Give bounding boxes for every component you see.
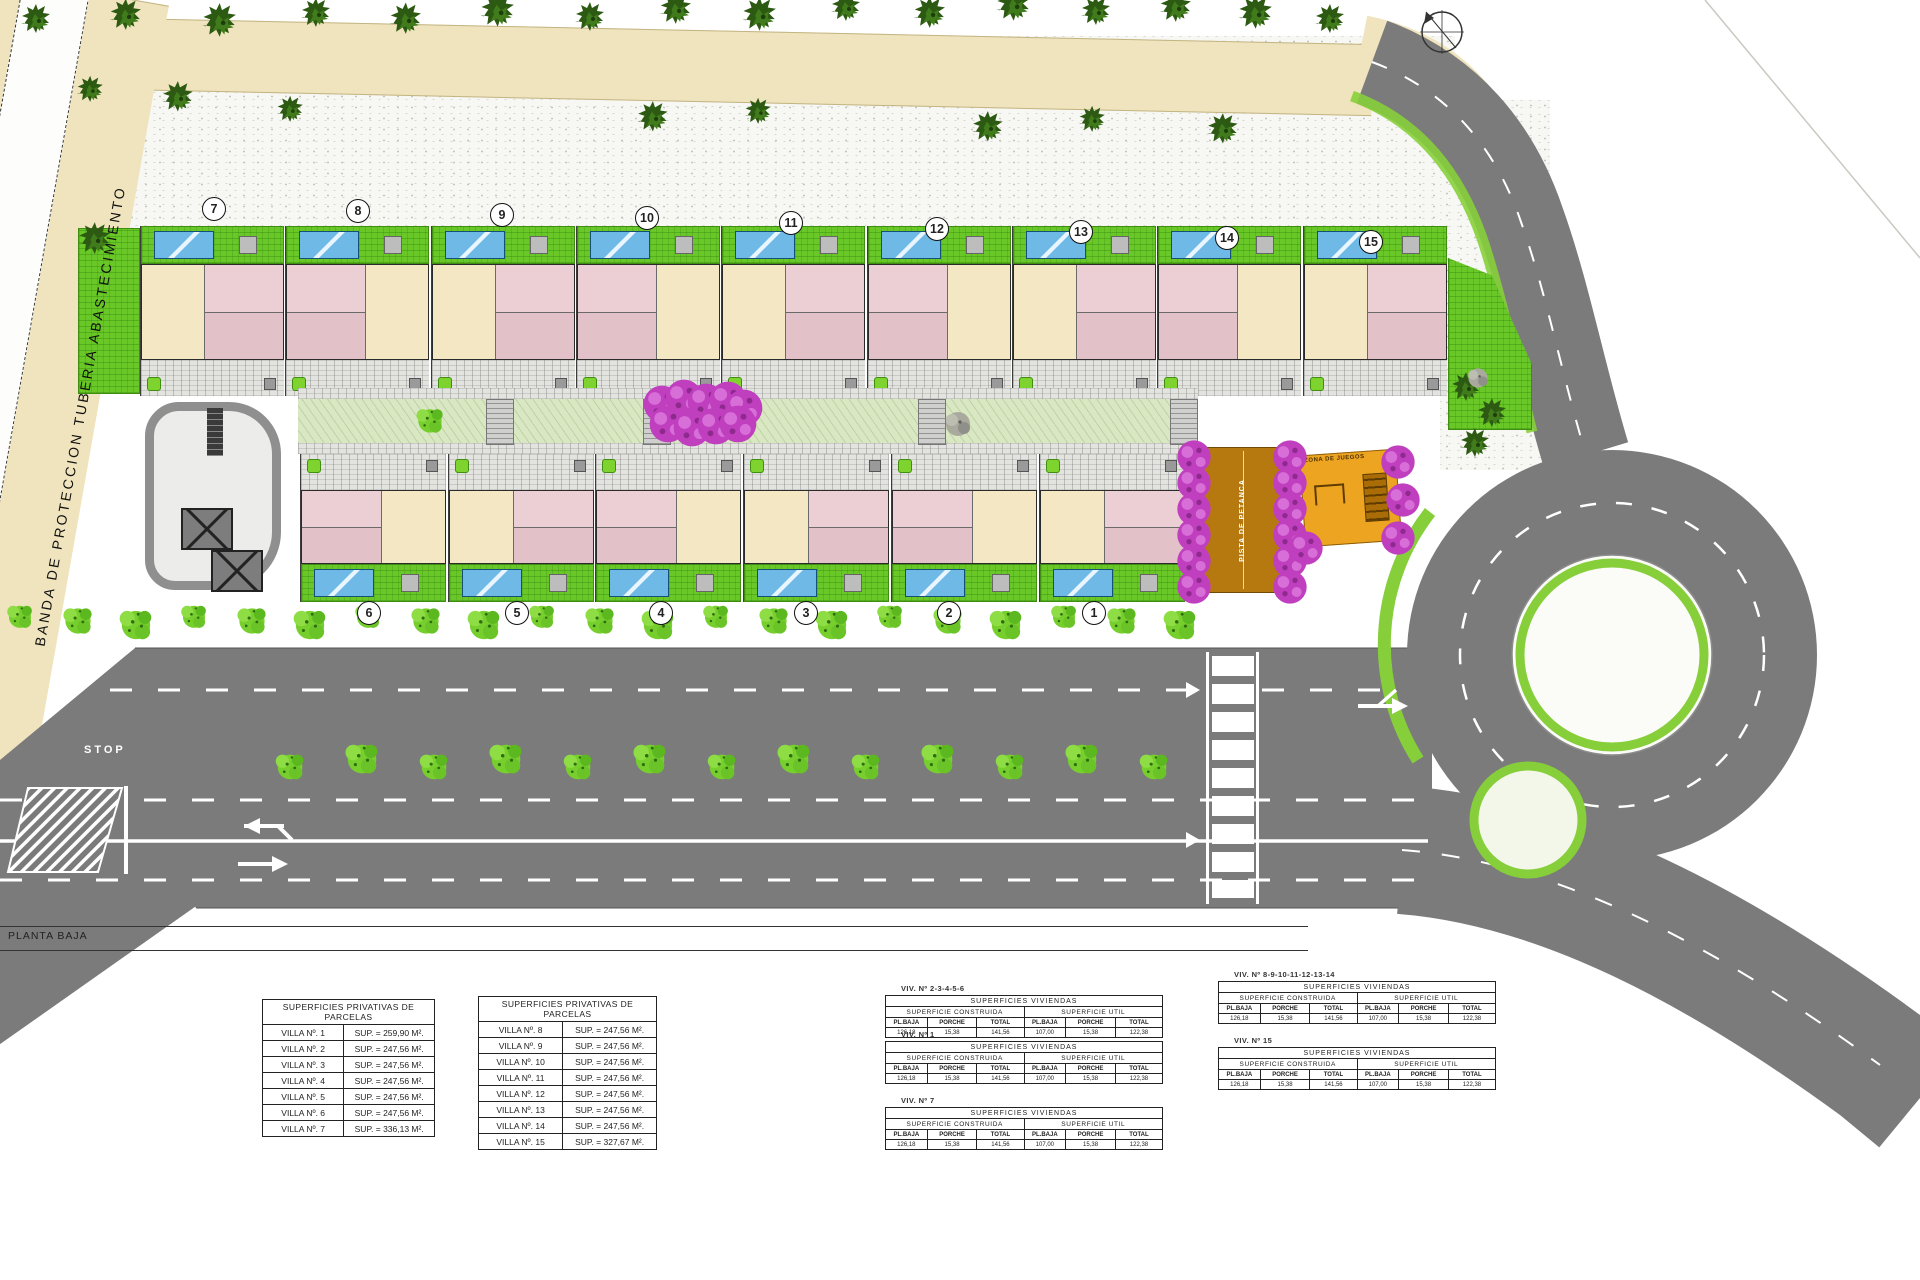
- viviendas-values: 126,1815,38141,56107,0015,38122,38: [1219, 1080, 1495, 1089]
- group-util: SUPERFICIE UTIL: [1358, 1059, 1496, 1069]
- villa-name-cell: VILLA Nº. 3: [263, 1057, 344, 1072]
- plan-title: PLANTA BAJA: [8, 930, 88, 942]
- surface-cell: SUP. = 247,56 M².: [563, 1118, 656, 1133]
- col-header-cell: PORCHE: [1261, 1004, 1311, 1013]
- value-cell: 15,38: [1399, 1014, 1449, 1023]
- group-construida: SUPERFICIE CONSTRUIDA: [886, 1007, 1025, 1017]
- surface-cell: SUP. = 247,56 M².: [344, 1057, 434, 1072]
- table-row: VILLA Nº. 8SUP. = 247,56 M².: [479, 1022, 656, 1038]
- viviendas-table-group: VIV. Nº 1SUPERFICIES VIVIENDASSUPERFICIE…: [885, 1030, 1163, 1084]
- table-row: VILLA Nº. 2SUP. = 247,56 M².: [263, 1041, 434, 1057]
- viviendas-header: SUPERFICIES VIVIENDAS: [1219, 982, 1495, 993]
- table-row: VILLA Nº. 5SUP. = 247,56 M².: [263, 1089, 434, 1105]
- villa-name-cell: VILLA Nº. 1: [263, 1025, 344, 1040]
- col-header-cell: TOTAL: [1116, 1018, 1162, 1027]
- viviendas-table-group: VIV. Nº 15SUPERFICIES VIVIENDASSUPERFICI…: [1218, 1036, 1496, 1090]
- villa-name-cell: VILLA Nº. 8: [479, 1022, 563, 1037]
- value-cell: 15,38: [1066, 1140, 1116, 1149]
- value-cell: 15,38: [928, 1140, 978, 1149]
- table-row: VILLA Nº. 9SUP. = 247,56 M².: [479, 1038, 656, 1054]
- group-construida: SUPERFICIE CONSTRUIDA: [1219, 993, 1358, 1003]
- col-header-cell: PL.BAJA: [1025, 1064, 1067, 1073]
- viviendas-header: SUPERFICIES VIVIENDAS: [886, 996, 1162, 1007]
- col-header-cell: PORCHE: [1066, 1130, 1116, 1139]
- col-header-cell: PL.BAJA: [1358, 1004, 1400, 1013]
- surface-cell: SUP. = 247,56 M².: [563, 1022, 656, 1037]
- villa-number-badge: 11: [779, 211, 803, 235]
- viviendas-table-title: VIV. Nº 8-9-10-11-12-13-14: [1234, 970, 1496, 979]
- villa-number-badge: 13: [1069, 220, 1093, 244]
- surface-cell: SUP. = 247,56 M².: [563, 1038, 656, 1053]
- value-cell: 126,18: [1219, 1014, 1261, 1023]
- villa-name-cell: VILLA Nº. 7: [263, 1121, 344, 1136]
- villa-number-badge: 3: [794, 601, 818, 625]
- group-construida: SUPERFICIE CONSTRUIDA: [886, 1053, 1025, 1063]
- col-header-cell: PL.BAJA: [1358, 1070, 1400, 1079]
- col-header-cell: TOTAL: [977, 1018, 1024, 1027]
- col-header-cell: PL.BAJA: [886, 1018, 928, 1027]
- parcel-table-title: SUPERFICIES PRIVATIVAS DE PARCELAS: [263, 1000, 434, 1025]
- viviendas-table: SUPERFICIES VIVIENDASSUPERFICIE CONSTRUI…: [1218, 981, 1496, 1024]
- viviendas-table-title: VIV. Nº 15: [1234, 1036, 1496, 1045]
- villa-number-badge: 14: [1215, 226, 1239, 250]
- col-header-cell: TOTAL: [1449, 1070, 1495, 1079]
- villa-name-cell: VILLA Nº. 9: [479, 1038, 563, 1053]
- villa-number-badge: 10: [635, 206, 659, 230]
- col-header-cell: PORCHE: [1066, 1018, 1116, 1027]
- parcel-table: SUPERFICIES PRIVATIVAS DE PARCELASVILLA …: [478, 996, 657, 1150]
- villa-number-badge: 2: [937, 601, 961, 625]
- value-cell: 122,38: [1116, 1140, 1162, 1149]
- site-plan-canvas: { "labels": { "left_band": "BANDA DE PRO…: [0, 0, 1920, 1280]
- villa-name-cell: VILLA Nº. 5: [263, 1089, 344, 1104]
- surface-cell: SUP. = 247,56 M².: [563, 1086, 656, 1101]
- viviendas-header: SUPERFICIES VIVIENDAS: [1219, 1048, 1495, 1059]
- surface-cell: SUP. = 247,56 M².: [563, 1102, 656, 1117]
- villa-name-cell: VILLA Nº. 12: [479, 1086, 563, 1101]
- surface-cell: SUP. = 247,56 M².: [563, 1070, 656, 1085]
- col-header-cell: TOTAL: [977, 1064, 1024, 1073]
- col-header-cell: PORCHE: [928, 1018, 978, 1027]
- col-header-cell: TOTAL: [1116, 1130, 1162, 1139]
- value-cell: 15,38: [1261, 1014, 1311, 1023]
- villa-number-badge: 5: [505, 601, 529, 625]
- villa-number-badge: 9: [490, 203, 514, 227]
- col-header-cell: PL.BAJA: [1219, 1070, 1261, 1079]
- table-row: VILLA Nº. 7SUP. = 336,13 M².: [263, 1121, 434, 1136]
- value-cell: 126,18: [886, 1140, 928, 1149]
- table-row: VILLA Nº. 6SUP. = 247,56 M².: [263, 1105, 434, 1121]
- viviendas-table: SUPERFICIES VIVIENDASSUPERFICIE CONSTRUI…: [885, 1107, 1163, 1150]
- value-cell: 126,18: [1219, 1080, 1261, 1089]
- viviendas-values: 126,1815,38141,56107,0015,38122,38: [886, 1140, 1162, 1149]
- viviendas-columns: PL.BAJAPORCHETOTALPL.BAJAPORCHETOTAL: [886, 1130, 1162, 1140]
- col-header-cell: PORCHE: [1399, 1004, 1449, 1013]
- villa-number-badge: 6: [357, 601, 381, 625]
- villa-name-cell: VILLA Nº. 13: [479, 1102, 563, 1117]
- value-cell: 107,00: [1025, 1140, 1067, 1149]
- parcel-table-title: SUPERFICIES PRIVATIVAS DE PARCELAS: [479, 997, 656, 1022]
- value-cell: 141,56: [977, 1074, 1024, 1083]
- villa-number-badge: 15: [1359, 230, 1383, 254]
- viviendas-groups: SUPERFICIE CONSTRUIDASUPERFICIE UTIL: [886, 1053, 1162, 1064]
- value-cell: 122,38: [1449, 1014, 1495, 1023]
- viviendas-values: 126,1815,38141,56107,0015,38122,38: [1219, 1014, 1495, 1023]
- generated-layer: 789101112131415654321SUPERFICIES PRIVATI…: [0, 0, 1920, 1280]
- viviendas-values: 126,1815,38141,56107,0015,38122,38: [886, 1074, 1162, 1083]
- viviendas-header: SUPERFICIES VIVIENDAS: [886, 1108, 1162, 1119]
- surface-cell: SUP. = 259,90 M².: [344, 1025, 434, 1040]
- value-cell: 141,56: [1310, 1080, 1357, 1089]
- group-util: SUPERFICIE UTIL: [1025, 1007, 1163, 1017]
- value-cell: 107,00: [1358, 1080, 1400, 1089]
- villa-name-cell: VILLA Nº. 6: [263, 1105, 344, 1120]
- viviendas-table-group: VIV. Nº 7SUPERFICIES VIVIENDASSUPERFICIE…: [885, 1096, 1163, 1150]
- col-header-cell: PL.BAJA: [1219, 1004, 1261, 1013]
- value-cell: 122,38: [1116, 1074, 1162, 1083]
- table-row: VILLA Nº. 10SUP. = 247,56 M².: [479, 1054, 656, 1070]
- viviendas-table: SUPERFICIES VIVIENDASSUPERFICIE CONSTRUI…: [1218, 1047, 1496, 1090]
- table-row: VILLA Nº. 14SUP. = 247,56 M².: [479, 1118, 656, 1134]
- villa-number-badge: 1: [1082, 601, 1106, 625]
- col-header-cell: PORCHE: [1399, 1070, 1449, 1079]
- viviendas-groups: SUPERFICIE CONSTRUIDASUPERFICIE UTIL: [1219, 993, 1495, 1004]
- villa-number-badge: 4: [649, 601, 673, 625]
- value-cell: 15,38: [1066, 1074, 1116, 1083]
- col-header-cell: TOTAL: [1310, 1070, 1357, 1079]
- col-header-cell: PORCHE: [928, 1130, 978, 1139]
- col-header-cell: PORCHE: [1066, 1064, 1116, 1073]
- group-util: SUPERFICIE UTIL: [1025, 1119, 1163, 1129]
- table-row: VILLA Nº. 15SUP. = 327,67 M².: [479, 1134, 656, 1149]
- col-header-cell: TOTAL: [977, 1130, 1024, 1139]
- viviendas-columns: PL.BAJAPORCHETOTALPL.BAJAPORCHETOTAL: [886, 1018, 1162, 1028]
- group-util: SUPERFICIE UTIL: [1025, 1053, 1163, 1063]
- villa-name-cell: VILLA Nº. 2: [263, 1041, 344, 1056]
- villa-number-badge: 12: [925, 217, 949, 241]
- table-row: VILLA Nº. 11SUP. = 247,56 M².: [479, 1070, 656, 1086]
- villa-name-cell: VILLA Nº. 14: [479, 1118, 563, 1133]
- value-cell: 15,38: [1261, 1080, 1311, 1089]
- surface-cell: SUP. = 247,56 M².: [344, 1041, 434, 1056]
- value-cell: 122,38: [1449, 1080, 1495, 1089]
- table-row: VILLA Nº. 13SUP. = 247,56 M².: [479, 1102, 656, 1118]
- viviendas-columns: PL.BAJAPORCHETOTALPL.BAJAPORCHETOTAL: [1219, 1004, 1495, 1014]
- surface-cell: SUP. = 247,56 M².: [563, 1054, 656, 1069]
- villa-name-cell: VILLA Nº. 10: [479, 1054, 563, 1069]
- parcel-table: SUPERFICIES PRIVATIVAS DE PARCELASVILLA …: [262, 999, 435, 1137]
- col-header-cell: PL.BAJA: [886, 1130, 928, 1139]
- table-row: VILLA Nº. 4SUP. = 247,56 M².: [263, 1073, 434, 1089]
- value-cell: 107,00: [1025, 1074, 1067, 1083]
- value-cell: 141,56: [1310, 1014, 1357, 1023]
- viviendas-groups: SUPERFICIE CONSTRUIDASUPERFICIE UTIL: [886, 1119, 1162, 1130]
- villa-name-cell: VILLA Nº. 11: [479, 1070, 563, 1085]
- surface-cell: SUP. = 247,56 M².: [344, 1073, 434, 1088]
- value-cell: 107,00: [1358, 1014, 1400, 1023]
- group-util: SUPERFICIE UTIL: [1358, 993, 1496, 1003]
- value-cell: 15,38: [1399, 1080, 1449, 1089]
- col-header-cell: TOTAL: [1310, 1004, 1357, 1013]
- villa-number-badge: 7: [202, 197, 226, 221]
- viviendas-groups: SUPERFICIE CONSTRUIDASUPERFICIE UTIL: [886, 1007, 1162, 1018]
- viviendas-table-title: VIV. Nº 1: [901, 1030, 1163, 1039]
- surface-cell: SUP. = 327,67 M².: [563, 1134, 656, 1149]
- table-row: VILLA Nº. 1SUP. = 259,90 M².: [263, 1025, 434, 1041]
- table-row: VILLA Nº. 12SUP. = 247,56 M².: [479, 1086, 656, 1102]
- group-construida: SUPERFICIE CONSTRUIDA: [886, 1119, 1025, 1129]
- villa-name-cell: VILLA Nº. 4: [263, 1073, 344, 1088]
- col-header-cell: PL.BAJA: [886, 1064, 928, 1073]
- viviendas-table: SUPERFICIES VIVIENDASSUPERFICIE CONSTRUI…: [885, 1041, 1163, 1084]
- surface-cell: SUP. = 247,56 M².: [344, 1089, 434, 1104]
- viviendas-table-group: VIV. Nº 8-9-10-11-12-13-14SUPERFICIES VI…: [1218, 970, 1496, 1024]
- col-header-cell: PORCHE: [1261, 1070, 1311, 1079]
- viviendas-columns: PL.BAJAPORCHETOTALPL.BAJAPORCHETOTAL: [886, 1064, 1162, 1074]
- value-cell: 126,18: [886, 1074, 928, 1083]
- villa-name-cell: VILLA Nº. 15: [479, 1134, 563, 1149]
- value-cell: 141,56: [977, 1140, 1024, 1149]
- col-header-cell: PORCHE: [928, 1064, 978, 1073]
- villa-number-badge: 8: [346, 199, 370, 223]
- surface-cell: SUP. = 247,56 M².: [344, 1105, 434, 1120]
- col-header-cell: PL.BAJA: [1025, 1018, 1067, 1027]
- table-row: VILLA Nº. 3SUP. = 247,56 M².: [263, 1057, 434, 1073]
- viviendas-groups: SUPERFICIE CONSTRUIDASUPERFICIE UTIL: [1219, 1059, 1495, 1070]
- value-cell: 15,38: [928, 1074, 978, 1083]
- viviendas-header: SUPERFICIES VIVIENDAS: [886, 1042, 1162, 1053]
- viviendas-table-title: VIV. Nº 7: [901, 1096, 1163, 1105]
- col-header-cell: TOTAL: [1449, 1004, 1495, 1013]
- col-header-cell: TOTAL: [1116, 1064, 1162, 1073]
- surface-cell: SUP. = 336,13 M².: [344, 1121, 434, 1136]
- col-header-cell: PL.BAJA: [1025, 1130, 1067, 1139]
- viviendas-columns: PL.BAJAPORCHETOTALPL.BAJAPORCHETOTAL: [1219, 1070, 1495, 1080]
- viviendas-table-title: VIV. Nº 2-3-4-5-6: [901, 984, 1163, 993]
- group-construida: SUPERFICIE CONSTRUIDA: [1219, 1059, 1358, 1069]
